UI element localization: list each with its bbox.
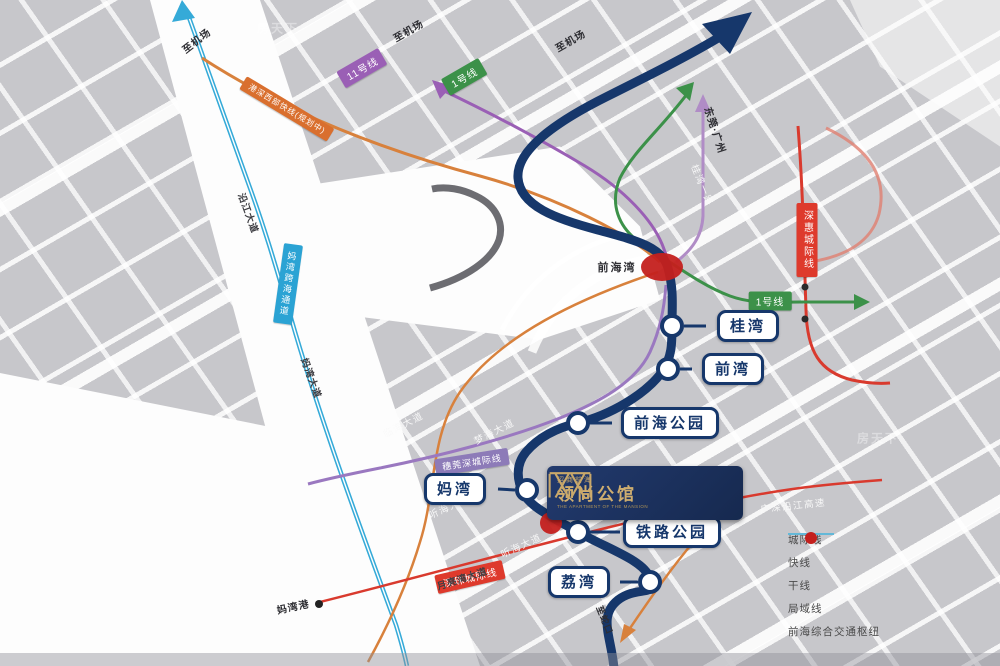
legend-row: 快线 xyxy=(788,554,880,570)
legend: 城际线 快线 干线 局域线 前海综合交通枢纽 xyxy=(788,531,880,639)
legend-row: 前海综合交通枢纽 xyxy=(788,623,880,639)
qianhaiwan-hub-dot xyxy=(641,253,683,281)
legend-hub-swatch xyxy=(788,531,834,545)
shenhui-label: 深惠城际线 xyxy=(797,203,818,277)
station-markers xyxy=(517,316,682,592)
stop-dot xyxy=(802,284,809,291)
station-label-railway-park: 铁路公园 xyxy=(623,516,721,548)
legend-row: 干线 xyxy=(788,577,880,593)
legend-label: 干线 xyxy=(788,578,811,593)
stop-dot xyxy=(802,316,809,323)
project-logo-icon xyxy=(547,466,593,504)
logo-english-name: THE APARTMENT OF THE MANSION xyxy=(557,504,648,509)
orange-arrow xyxy=(620,624,636,643)
watermark: 房天下 xyxy=(857,430,899,447)
station-label-qianwan: 前湾 xyxy=(702,353,764,385)
mawan-port-dot xyxy=(315,600,323,608)
line1-arrow-east xyxy=(854,294,870,310)
station-label-liwan: 荔湾 xyxy=(548,566,610,598)
watermark: 房天下 xyxy=(257,20,299,37)
project-logo-card: 招商前海 领尚公馆 THE APARTMENT OF THE MANSION xyxy=(547,466,743,520)
map-edge-strip xyxy=(0,653,1000,666)
station-label-guiwan: 桂湾 xyxy=(717,310,779,342)
legend-row: 局域线 xyxy=(788,600,880,616)
transit-map: 11号线 1号线 1号线 港深西部快线(规划中) 穗莞深城际线 深惠城际线 深珠… xyxy=(0,0,1000,666)
line1-label-mid: 1号线 xyxy=(749,292,792,311)
bay-road-arc-2 xyxy=(502,232,640,330)
road-arc-topright xyxy=(810,128,881,262)
dark-road-curve xyxy=(430,188,501,288)
legend-label: 前海综合交通枢纽 xyxy=(788,624,880,639)
station-label-qianhai-park: 前海公园 xyxy=(621,407,719,439)
qianhaiwan-label: 前海湾 xyxy=(598,259,637,275)
legend-label: 快线 xyxy=(788,555,811,570)
station-label-mawan: 妈湾 xyxy=(424,473,486,505)
legend-label: 局域线 xyxy=(788,601,823,616)
